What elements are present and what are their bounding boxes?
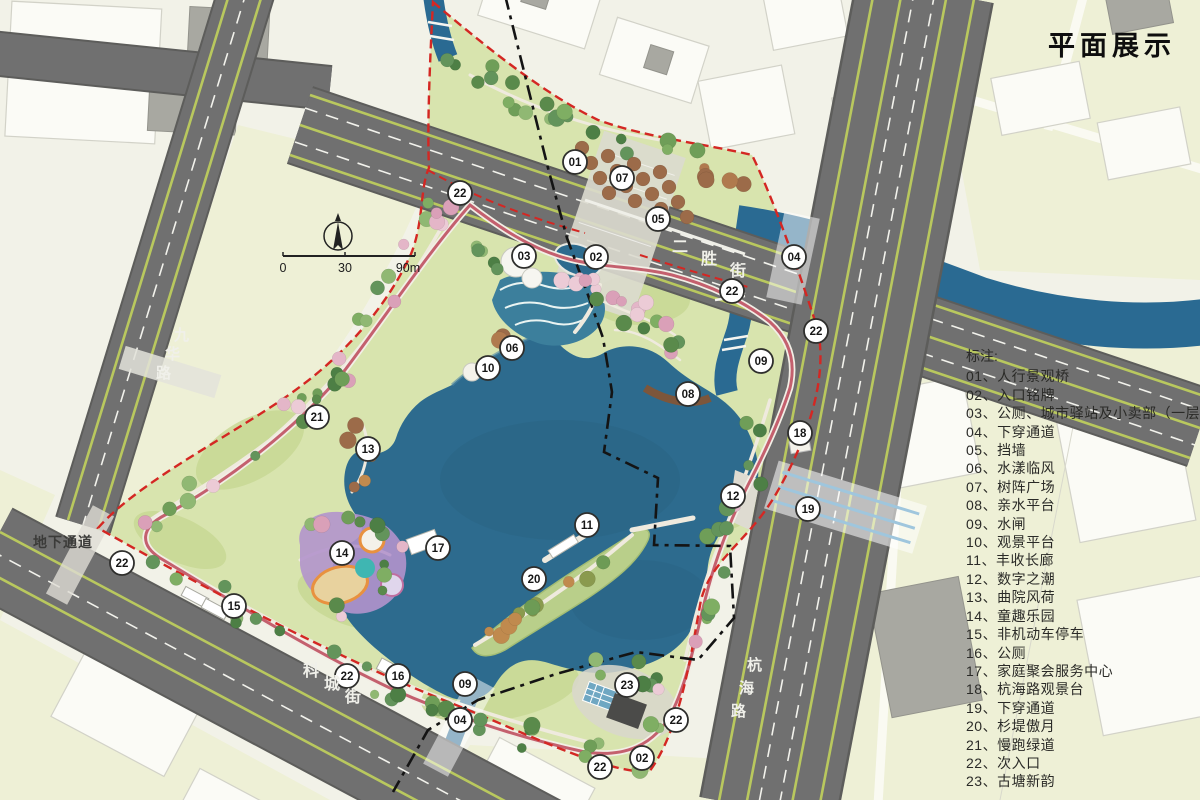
svg-text:街: 街: [344, 687, 361, 706]
legend-item: 12、数字之潮: [966, 570, 1200, 588]
map-marker-16: 16: [386, 664, 410, 688]
map-marker-05: 05: [646, 207, 670, 231]
tree: [378, 586, 387, 595]
map-marker-12: 12: [721, 484, 745, 508]
tree: [586, 125, 600, 139]
svg-text:22: 22: [341, 671, 354, 683]
map-marker-08: 08: [676, 382, 700, 406]
svg-text:街: 街: [729, 261, 746, 280]
map-marker-11: 11: [575, 513, 599, 537]
tree: [370, 690, 379, 699]
tree: [370, 517, 386, 533]
legend-item: 18、杭海路观景台: [966, 680, 1200, 698]
tree: [146, 555, 160, 569]
svg-text:01: 01: [569, 157, 582, 169]
street-label: 地下通道: [33, 534, 92, 550]
tree: [753, 424, 767, 438]
svg-text:路: 路: [156, 364, 172, 382]
lake-depth: [440, 420, 680, 540]
tree: [588, 652, 603, 667]
tree: [182, 476, 197, 491]
tree: [170, 573, 183, 586]
page-title: 平面展示: [1048, 24, 1176, 63]
tree: [377, 567, 392, 582]
tree: [355, 517, 366, 528]
tree: [472, 244, 485, 257]
svg-text:04: 04: [788, 252, 801, 264]
tree: [327, 645, 341, 659]
tree: [397, 541, 409, 553]
svg-text:华: 华: [165, 345, 180, 363]
svg-text:地: 地: [33, 534, 47, 550]
tree: [754, 477, 769, 492]
svg-text:09: 09: [459, 679, 472, 691]
tree: [359, 475, 371, 487]
tree: [698, 172, 714, 188]
tree: [329, 598, 345, 614]
scale-tick: 30: [338, 261, 352, 275]
svg-text:科: 科: [303, 661, 319, 680]
svg-text:杭: 杭: [747, 656, 762, 674]
svg-text:20: 20: [528, 574, 541, 586]
tree: [381, 269, 396, 284]
svg-text:道: 道: [78, 534, 92, 550]
legend-item: 02、入口铭牌: [966, 386, 1200, 404]
tree: [554, 272, 571, 289]
map-marker-17: 17: [426, 536, 450, 560]
svg-text:06: 06: [506, 343, 519, 355]
tree: [341, 511, 355, 525]
map-marker-01: 01: [563, 150, 587, 174]
tree: [291, 399, 306, 414]
map-marker-14: 14: [330, 541, 354, 565]
legend-item: 06、水漾临风: [966, 459, 1200, 477]
plaza-tree: [593, 171, 607, 185]
svg-text:路: 路: [731, 702, 747, 720]
tree: [180, 493, 196, 509]
svg-text:通: 通: [63, 534, 77, 550]
map-marker-04: 04: [782, 245, 806, 269]
svg-text:18: 18: [794, 428, 807, 440]
map-marker-09: 09: [749, 349, 773, 373]
svg-text:海: 海: [739, 679, 754, 697]
svg-text:16: 16: [392, 671, 405, 683]
legend-item: 17、家庭聚会服务中心: [966, 662, 1200, 680]
plaza-tree: [680, 210, 694, 224]
svg-text:09: 09: [755, 356, 768, 368]
svg-text:22: 22: [116, 558, 129, 570]
tree: [312, 395, 321, 404]
map-marker-22: 22: [720, 279, 744, 303]
visitor-center-building: [522, 268, 542, 288]
tree: [719, 521, 733, 535]
tree: [390, 687, 406, 703]
tree: [690, 143, 706, 159]
tree: [250, 613, 262, 625]
tree: [662, 144, 673, 155]
legend-item: 05、挡墙: [966, 441, 1200, 459]
svg-text:胜: 胜: [701, 250, 717, 268]
plaza-tree: [645, 187, 659, 201]
tree: [589, 292, 603, 306]
map-marker-15: 15: [222, 594, 246, 618]
svg-text:10: 10: [482, 363, 495, 375]
svg-text:22: 22: [810, 326, 823, 338]
svg-text:12: 12: [727, 491, 740, 503]
tree: [218, 580, 231, 593]
tree: [505, 75, 520, 90]
map-marker-02: 02: [630, 746, 654, 770]
legend-item: 19、下穿通道: [966, 699, 1200, 717]
tree: [362, 662, 372, 672]
svg-text:13: 13: [362, 444, 375, 456]
tree: [207, 479, 220, 492]
tree: [398, 239, 409, 250]
tree: [163, 502, 177, 516]
svg-text:02: 02: [636, 753, 649, 765]
tree: [250, 451, 260, 461]
legend-item: 20、杉堤傲月: [966, 717, 1200, 735]
svg-text:23: 23: [621, 680, 634, 692]
tree: [349, 482, 360, 493]
tree: [426, 704, 438, 716]
svg-text:下: 下: [48, 534, 62, 550]
tree: [540, 97, 555, 112]
tree: [743, 460, 753, 470]
tree: [484, 71, 498, 85]
map-marker-20: 20: [522, 567, 546, 591]
tree: [524, 599, 540, 615]
svg-text:14: 14: [336, 548, 349, 560]
tree: [339, 432, 356, 449]
map-marker-13: 13: [356, 437, 380, 461]
legend-item: 04、下穿通道: [966, 423, 1200, 441]
legend-item: 09、水闸: [966, 515, 1200, 533]
svg-text:05: 05: [652, 214, 665, 226]
tree: [275, 626, 286, 637]
map-marker-22: 22: [588, 755, 612, 779]
tree: [632, 654, 647, 669]
svg-text:城: 城: [324, 675, 340, 693]
tree: [617, 296, 627, 306]
tree: [658, 316, 674, 332]
svg-text:11: 11: [581, 520, 594, 532]
legend-item: 16、公厕: [966, 644, 1200, 662]
map-marker-22: 22: [804, 319, 828, 343]
tree: [579, 274, 592, 287]
tree: [718, 566, 730, 578]
tree: [557, 104, 573, 120]
tree: [423, 198, 434, 209]
tree: [638, 322, 650, 334]
map-marker-22: 22: [110, 551, 134, 575]
plaza-tree: [636, 172, 650, 186]
tree: [491, 263, 503, 275]
svg-text:22: 22: [726, 286, 739, 298]
svg-text:04: 04: [454, 715, 467, 727]
legend-item: 22、次入口: [966, 754, 1200, 772]
tree: [703, 599, 720, 616]
tree: [579, 571, 595, 587]
plaza-tree: [653, 165, 667, 179]
tree: [524, 717, 541, 734]
tree: [563, 576, 574, 587]
svg-text:21: 21: [311, 412, 324, 424]
tree: [370, 281, 384, 295]
tree: [347, 417, 363, 433]
svg-text:17: 17: [432, 543, 445, 555]
svg-text:22: 22: [670, 715, 683, 727]
map-marker-19: 19: [796, 497, 820, 521]
map-marker-21: 21: [305, 405, 329, 429]
map-marker-22: 22: [664, 708, 688, 732]
tree: [335, 372, 350, 387]
tree: [616, 134, 626, 144]
tree: [230, 617, 241, 628]
plaza-tree: [671, 195, 685, 209]
legend-list: 01、人行景观桥02、入口铭牌03、公厕、城市驿站及小卖部（一层）04、下穿通道…: [966, 367, 1200, 790]
map-marker-04: 04: [448, 708, 472, 732]
tree: [595, 670, 606, 681]
tree: [517, 743, 526, 752]
legend-item: 07、树阵广场: [966, 478, 1200, 496]
svg-text:22: 22: [454, 188, 467, 200]
map-marker-06: 06: [500, 336, 524, 360]
map-marker-07: 07: [610, 166, 634, 190]
tree: [503, 97, 515, 109]
map-marker-03: 03: [512, 244, 536, 268]
tree: [653, 683, 665, 695]
tree: [388, 295, 401, 308]
svg-text:02: 02: [590, 252, 603, 264]
tree: [509, 613, 522, 626]
plaza-tree: [628, 194, 642, 208]
legend-item: 14、童趣乐园: [966, 607, 1200, 625]
legend-item: 11、丰收长廊: [966, 551, 1200, 569]
tree: [689, 635, 703, 649]
map-marker-22: 22: [448, 181, 472, 205]
legend-item: 15、非机动车停车: [966, 625, 1200, 643]
svg-text:19: 19: [802, 504, 815, 516]
legend-item: 13、曲院风荷: [966, 588, 1200, 606]
legend-item: 01、人行景观桥: [966, 367, 1200, 385]
tree: [616, 315, 632, 331]
tree: [474, 713, 488, 727]
tree: [740, 416, 754, 430]
plaza-tree: [662, 180, 676, 194]
tree: [736, 176, 752, 192]
svg-text:07: 07: [616, 173, 629, 185]
tree: [332, 352, 346, 366]
tree: [151, 521, 162, 532]
tree: [638, 295, 654, 311]
map-marker-10: 10: [476, 356, 500, 380]
tree: [484, 627, 493, 636]
map-marker-02: 02: [584, 245, 608, 269]
scale-tick: 0: [280, 261, 287, 275]
svg-text:15: 15: [228, 601, 241, 613]
tree: [519, 106, 533, 120]
tree: [471, 76, 484, 89]
plaza-tree: [602, 186, 616, 200]
svg-text:08: 08: [682, 389, 695, 401]
svg-text:22: 22: [594, 762, 607, 774]
legend-item: 23、古塘新韵: [966, 772, 1200, 790]
tree: [431, 208, 442, 219]
map-marker-09: 09: [453, 672, 477, 696]
tree: [440, 53, 454, 67]
svg-text:九: 九: [173, 326, 189, 344]
legend-heading: 标注:: [966, 347, 1200, 365]
tree: [138, 515, 152, 529]
tree: [277, 398, 290, 411]
plan-sheet: 0107220503020422220610090821181312191117…: [0, 0, 1200, 800]
tree: [313, 516, 330, 533]
svg-text:03: 03: [518, 251, 531, 263]
tree: [596, 555, 610, 569]
legend-item: 03、公厕、城市驿站及小卖部（一层）: [966, 404, 1200, 422]
legend-item: 10、观景平台: [966, 533, 1200, 551]
tree: [722, 173, 738, 189]
legend-panel: 标注: 01、人行景观桥02、入口铭牌03、公厕、城市驿站及小卖部（一层）04、…: [966, 347, 1200, 791]
legend-item: 08、亲水平台: [966, 496, 1200, 514]
map-marker-18: 18: [788, 421, 812, 445]
tree: [663, 337, 678, 352]
svg-text:二: 二: [672, 239, 688, 256]
tree: [643, 716, 659, 732]
plaza-tree: [601, 149, 615, 163]
legend-item: 21、慢跑绿道: [966, 736, 1200, 754]
map-marker-23: 23: [615, 673, 639, 697]
scale-tick: 90m: [396, 261, 420, 275]
tree: [360, 315, 372, 327]
